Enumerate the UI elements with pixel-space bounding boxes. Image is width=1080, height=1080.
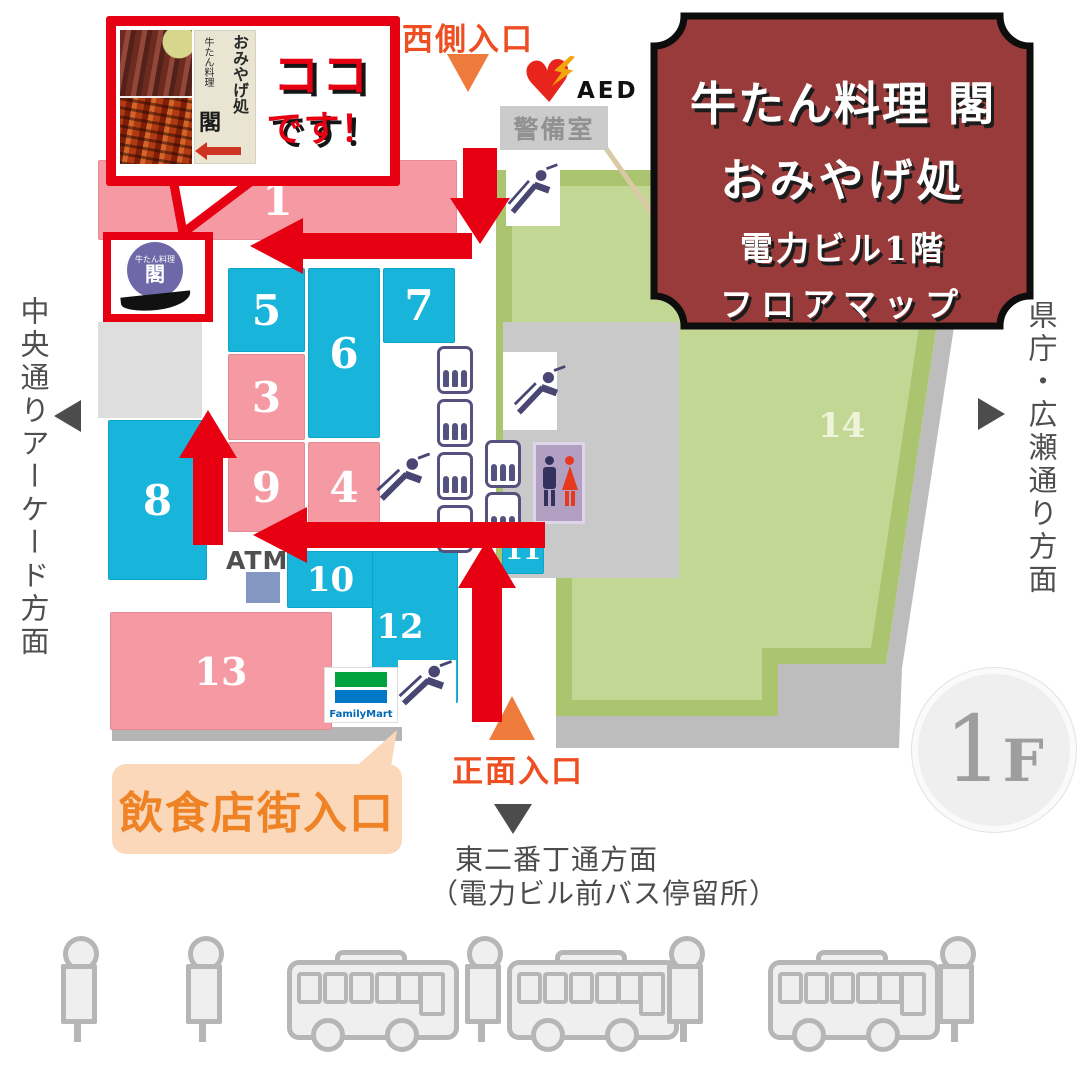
elevator-icon — [437, 399, 473, 447]
floor-map-poster: 1 5 6 7 3 9 4 8 10 12 13 11 14 警備室 ♥ AED… — [0, 0, 1080, 1080]
elevator-icon — [437, 452, 473, 500]
restroom-icon — [533, 442, 585, 524]
escalator-icon — [506, 152, 560, 226]
here-text: ココ です！ — [258, 30, 386, 172]
map-block-8: 8 — [108, 420, 207, 580]
plate-title-line1: 牛たん料理 閣 — [648, 68, 1038, 134]
map-block-5: 5 — [228, 268, 305, 352]
bus-icon — [768, 944, 944, 1050]
restroom-woman-icon — [562, 456, 577, 510]
elevator-icon — [437, 505, 473, 553]
escalator-icon — [376, 452, 434, 508]
here-callout-bubble: おみやげ処 牛たん料理 閣 ココ です！ — [106, 16, 400, 186]
map-block-13: 13 — [110, 612, 332, 730]
map-block-14-label: 14 — [818, 406, 865, 446]
right-direction-label: 県庁・広瀬通り方面 — [1020, 300, 1062, 597]
shop-photo — [120, 30, 192, 164]
west-entrance-label: 西側入口 — [402, 14, 534, 59]
plate-title-line4: フロアマップ — [648, 278, 1038, 326]
shop-logo-icon: 牛たん料理 閣 — [127, 242, 183, 298]
bus-stop-icon — [60, 936, 98, 1044]
atm-machine — [246, 572, 280, 603]
shop-logo-swoosh — [120, 290, 191, 313]
map-block-9: 9 — [228, 442, 305, 532]
bus-stop-icon — [464, 936, 502, 1044]
atm-label: ATM — [226, 546, 288, 575]
sign-left-arrow-icon — [207, 147, 241, 155]
shop-signboard: おみやげ処 牛たん料理 閣 — [194, 30, 256, 164]
floor-badge: 1 F — [912, 668, 1076, 832]
bus-stop-icon — [185, 936, 223, 1044]
escalator-icon — [398, 660, 456, 712]
bus-icon — [507, 944, 683, 1050]
map-block-6: 6 — [308, 268, 380, 438]
left-direction-arrow-icon — [54, 400, 81, 432]
shop-location-marker: 牛たん料理 閣 — [103, 232, 213, 322]
dining-street-entrance-label: 飲食店街入口 — [112, 764, 402, 854]
map-block-4: 4 — [308, 442, 380, 532]
map-block-3: 3 — [228, 354, 305, 440]
familymart-blue-bar — [335, 690, 387, 703]
south-busstop-label: （電力ビル前バス停留所） — [430, 872, 778, 912]
west-entrance-arrow-icon — [447, 54, 489, 92]
left-direction-label: 中央通りアーケード方面 — [12, 296, 54, 659]
plate-title-line3: 電力ビル1階 — [648, 222, 1038, 270]
main-entrance-label: 正面入口 — [452, 746, 584, 791]
escalator-icon — [512, 362, 568, 424]
map-block-7: 7 — [383, 268, 455, 343]
elevator-icon — [485, 492, 521, 540]
elevator-icon — [437, 346, 473, 394]
familymart-green-bar — [335, 672, 387, 687]
floor-letter: F — [1003, 732, 1044, 790]
plate-title-line2: おみやげ処 — [648, 144, 1038, 209]
main-entrance-arrow-icon — [489, 696, 535, 740]
elevator-icon — [485, 440, 521, 488]
bus-icon — [287, 944, 463, 1050]
beef-tongue-plate-photo — [120, 30, 192, 98]
bus-stop-icon — [666, 936, 704, 1044]
map-block-10: 10 — [287, 551, 374, 608]
familymart-label: FamilyMart — [325, 709, 397, 720]
title-plate: 牛たん料理 閣 おみやげ処 電力ビル1階 フロアマップ — [648, 10, 1038, 332]
vacant-block — [98, 322, 202, 418]
restroom-man-icon — [542, 456, 557, 510]
floor-number: 1 — [944, 704, 1003, 796]
south-direction-arrow-icon — [494, 804, 532, 834]
beef-tongue-grill-photo — [120, 98, 192, 164]
right-direction-arrow-icon — [978, 398, 1005, 430]
aed-label: AED — [577, 78, 639, 104]
familymart-store: FamilyMart — [325, 668, 397, 722]
bus-stop-icon — [937, 936, 975, 1044]
